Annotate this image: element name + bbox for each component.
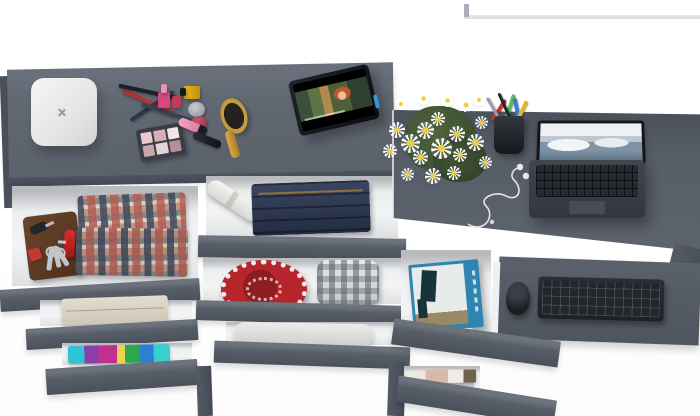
middle-drawer-1-interior <box>206 176 398 238</box>
eyeshadow-pan <box>169 140 182 153</box>
jewelry-box <box>31 78 97 146</box>
keyboard <box>537 276 664 321</box>
middle-drawer-1-front <box>198 235 406 261</box>
daisy <box>431 138 452 159</box>
daisy <box>413 150 428 165</box>
jeans-stack <box>251 180 371 236</box>
nail-polish-pink-cap <box>161 84 167 93</box>
middle-drawer-2-interior <box>203 258 401 304</box>
keyboard-keys <box>542 280 661 317</box>
daisy <box>441 94 454 107</box>
red-tag <box>27 247 42 262</box>
folded-towel <box>62 295 169 325</box>
eyeshadow-pan <box>140 132 153 145</box>
car-key-fob <box>29 220 49 236</box>
laptop-keyboard <box>536 165 638 197</box>
daisy <box>383 144 397 158</box>
nail-polish-yellow-cap <box>180 88 186 96</box>
laptop-body <box>529 160 645 218</box>
box-logo-icon <box>57 108 66 117</box>
daisy <box>395 98 407 110</box>
daisy <box>475 116 488 129</box>
book-cover-figure <box>420 270 437 302</box>
daisy <box>467 134 484 151</box>
eyeshadow-pan <box>166 127 179 140</box>
daisy <box>417 122 434 139</box>
daisy <box>431 112 445 126</box>
book-cover-figure <box>417 299 428 319</box>
nail-polish-yellow <box>184 86 200 99</box>
cream-jar-silver <box>188 102 205 117</box>
furniture-render-scene <box>0 0 700 416</box>
daisy <box>417 92 430 105</box>
movie-frame <box>294 76 373 123</box>
laptop-screen <box>536 121 646 165</box>
daisy <box>389 122 405 138</box>
daisy <box>449 126 465 142</box>
eyeshadow-pan <box>156 142 169 155</box>
gray-plaid-roll <box>317 260 379 306</box>
daisy <box>447 166 461 180</box>
wall-shelf-edge <box>464 15 700 19</box>
nail-polish-small <box>172 96 181 108</box>
pen-cup <box>494 116 524 154</box>
wallet <box>22 211 83 281</box>
middle-left-leg <box>196 366 213 416</box>
nail-polish-pink <box>158 92 170 108</box>
left-drawer-1-interior <box>12 186 198 286</box>
daisy <box>473 94 485 106</box>
plaid-shirt-bottom <box>76 227 189 277</box>
daisy <box>401 168 414 181</box>
wall-shelf-bracket <box>464 4 469 17</box>
book-spine-marks <box>472 270 479 311</box>
eyeshadow-pan <box>142 144 155 157</box>
daisy <box>459 98 473 112</box>
daisy <box>425 168 441 184</box>
laptop-trackpad <box>569 201 605 214</box>
eyeshadow-pan <box>153 129 166 142</box>
